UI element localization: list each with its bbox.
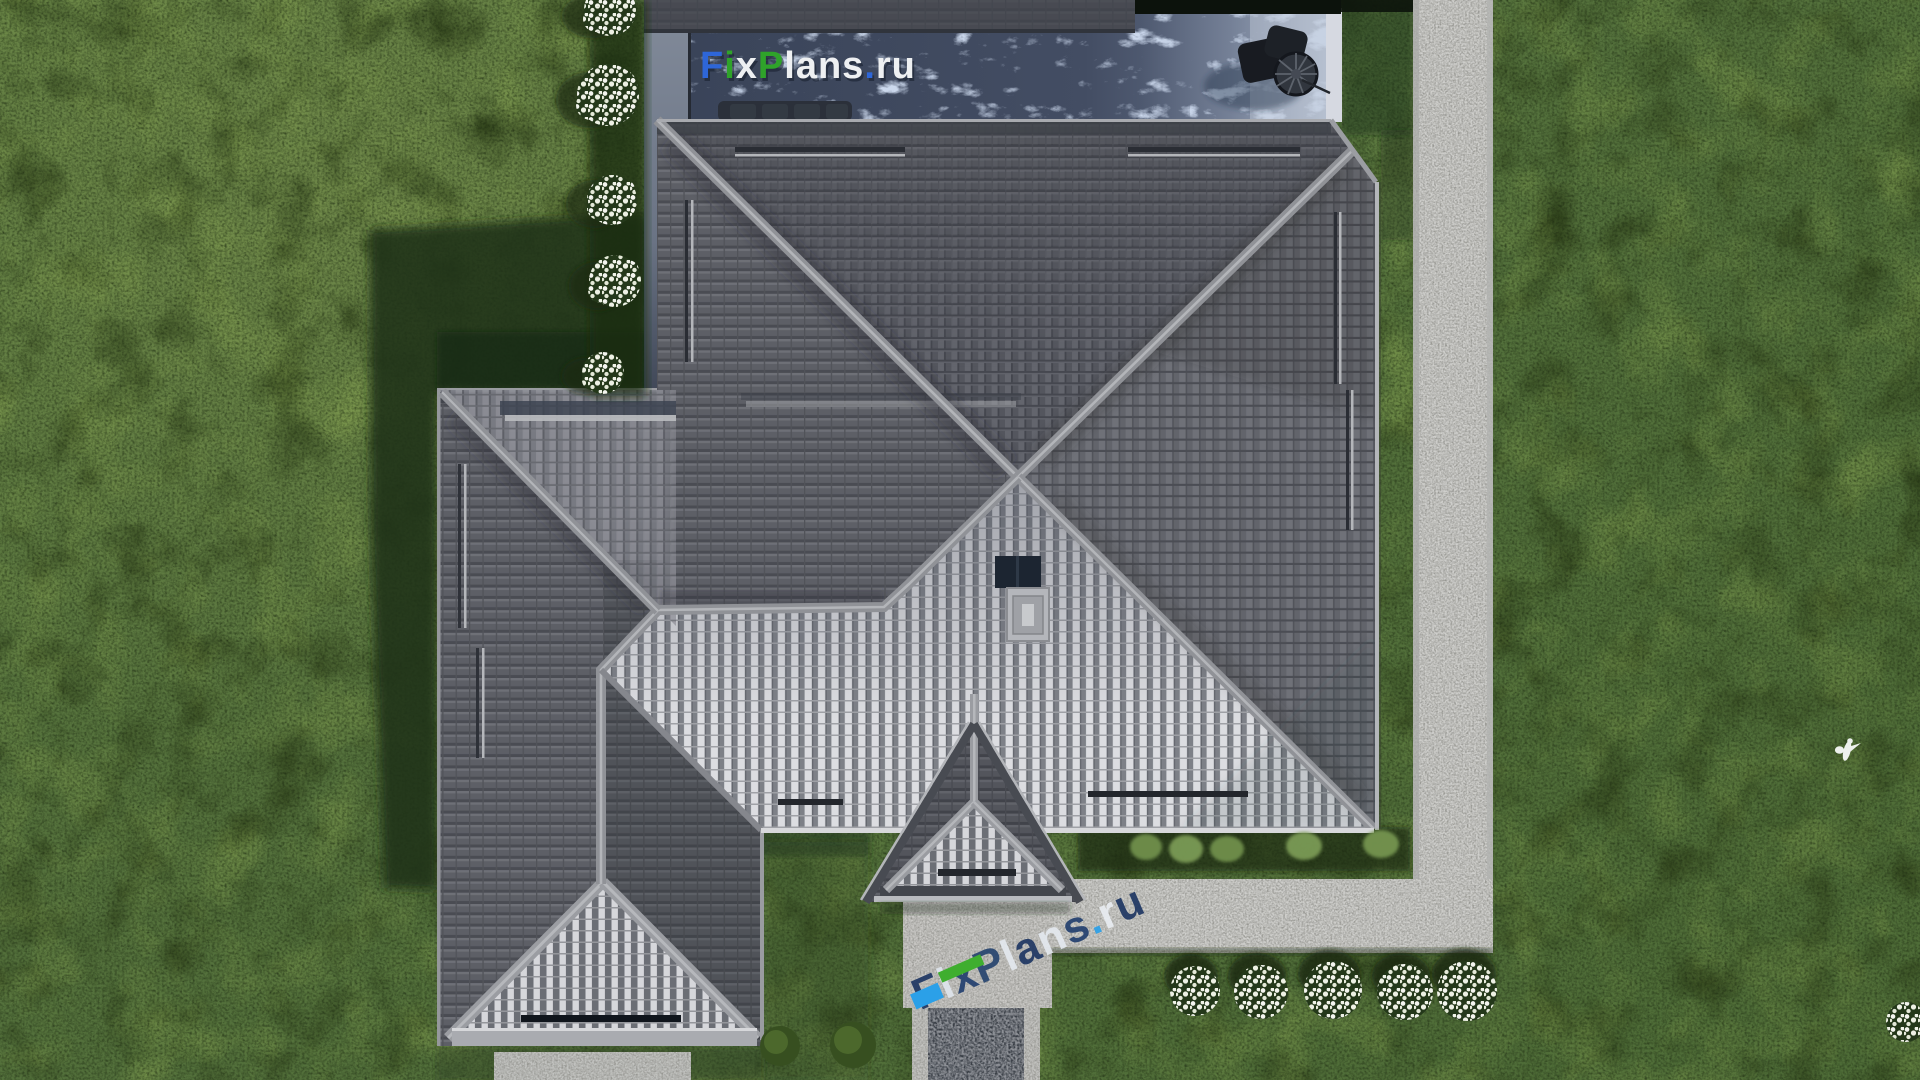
svg-text:FixPlans.ru: FixPlans.ru bbox=[700, 45, 916, 87]
